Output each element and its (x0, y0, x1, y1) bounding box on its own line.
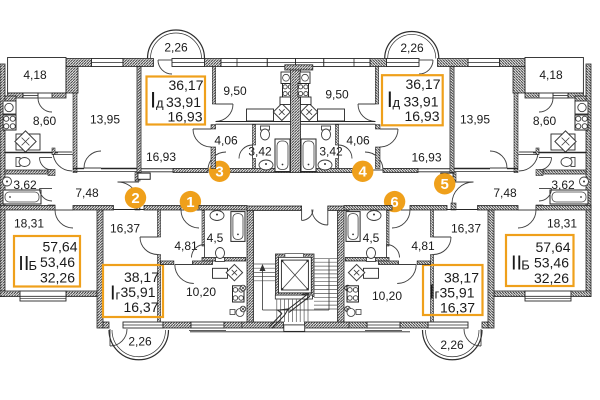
svg-text:Б: Б (521, 258, 530, 273)
svg-text:4,81: 4,81 (174, 239, 198, 253)
svg-text:16,37: 16,37 (110, 222, 140, 236)
svg-text:10,20: 10,20 (372, 289, 402, 303)
svg-text:2,26: 2,26 (128, 335, 152, 349)
svg-text:16,93: 16,93 (167, 109, 202, 125)
svg-text:4: 4 (359, 164, 368, 181)
svg-text:36,17: 36,17 (168, 77, 203, 93)
svg-text:38,17: 38,17 (444, 270, 479, 286)
svg-text:7,48: 7,48 (75, 186, 99, 200)
svg-text:д: д (393, 95, 401, 110)
svg-text:53,46: 53,46 (40, 254, 75, 270)
svg-text:18,31: 18,31 (14, 217, 44, 231)
svg-text:7,48: 7,48 (493, 186, 517, 200)
svg-text:Б: Б (29, 258, 38, 273)
svg-text:3,42: 3,42 (319, 145, 343, 159)
svg-text:16,37: 16,37 (123, 299, 158, 315)
svg-text:1: 1 (186, 194, 194, 211)
svg-text:32,26: 32,26 (534, 270, 569, 286)
svg-text:16,93: 16,93 (411, 151, 441, 165)
svg-text:16,37: 16,37 (451, 222, 481, 236)
svg-text:53,46: 53,46 (534, 255, 569, 271)
svg-text:4,06: 4,06 (214, 134, 238, 148)
svg-text:д: д (156, 96, 164, 111)
svg-text:8,60: 8,60 (533, 114, 557, 128)
svg-text:4,06: 4,06 (346, 134, 370, 148)
svg-text:57,64: 57,64 (42, 239, 77, 255)
svg-text:4,81: 4,81 (411, 239, 435, 253)
svg-text:57,64: 57,64 (535, 239, 570, 255)
svg-text:4,5: 4,5 (207, 231, 224, 245)
svg-text:9,50: 9,50 (325, 88, 349, 102)
svg-text:8,60: 8,60 (33, 114, 57, 128)
svg-text:16,37: 16,37 (440, 300, 475, 316)
svg-text:3,42: 3,42 (248, 145, 272, 159)
svg-text:36,17: 36,17 (405, 76, 440, 92)
svg-text:3: 3 (215, 164, 223, 181)
svg-text:32,26: 32,26 (40, 270, 75, 286)
svg-text:9,50: 9,50 (223, 84, 247, 98)
svg-text:4,18: 4,18 (539, 68, 563, 82)
svg-text:4,18: 4,18 (23, 68, 47, 82)
svg-text:38,17: 38,17 (124, 269, 159, 285)
svg-text:13,95: 13,95 (90, 113, 120, 127)
svg-text:16,93: 16,93 (404, 108, 439, 124)
svg-text:4,5: 4,5 (363, 231, 380, 245)
svg-text:35,91: 35,91 (439, 285, 474, 301)
svg-text:2,26: 2,26 (164, 41, 188, 55)
svg-text:16,93: 16,93 (146, 150, 176, 164)
svg-text:2: 2 (131, 190, 139, 207)
svg-text:5: 5 (441, 176, 449, 193)
svg-text:18,31: 18,31 (547, 217, 577, 231)
svg-text:13,95: 13,95 (460, 113, 490, 127)
svg-text:10,20: 10,20 (186, 285, 216, 299)
svg-text:2,26: 2,26 (440, 338, 464, 352)
svg-text:2,26: 2,26 (400, 41, 424, 55)
svg-text:35,91: 35,91 (120, 284, 155, 300)
